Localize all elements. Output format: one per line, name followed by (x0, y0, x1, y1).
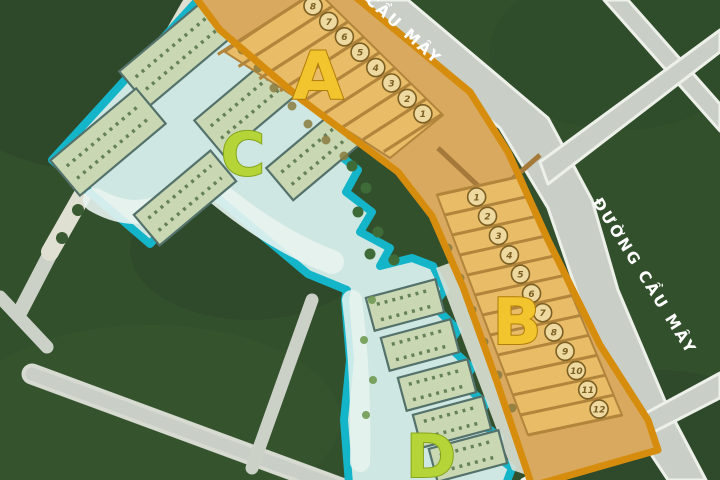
tree-dot (361, 183, 372, 194)
tree-dot (353, 207, 364, 218)
bush-dot (368, 296, 376, 304)
hedge-tree-dot (72, 204, 84, 216)
tree-dot (373, 227, 384, 238)
tree-dot (365, 249, 376, 260)
unit-number: 3 (495, 232, 501, 242)
tree-dot (389, 255, 400, 266)
unit-number: 4 (505, 251, 512, 261)
zone-c-label[interactable]: C (221, 120, 265, 190)
unit-number: 11 (581, 386, 594, 396)
margin-tree-dot (270, 84, 279, 93)
zone-d-label[interactable]: D (406, 422, 456, 480)
masterplan-map: 87654321 123456789101112 A B C D ĐƯỜNG C… (0, 0, 720, 480)
unit-number: 12 (593, 405, 606, 415)
margin-tree-dot (304, 120, 313, 129)
unit-number: 4 (372, 64, 379, 74)
unit-number: 1 (474, 193, 480, 203)
plaza-walk-d (352, 300, 360, 462)
masterplan-svg: 87654321 123456789101112 A B C D ĐƯỜNG C… (0, 0, 720, 480)
unit-number: 2 (404, 95, 410, 105)
unit-number: 10 (570, 367, 583, 377)
bush-dot (360, 336, 368, 344)
margin-tree-dot (340, 152, 349, 161)
unit-number: 5 (357, 49, 363, 59)
unit-number: 2 (484, 213, 490, 223)
unit-number: 8 (310, 2, 316, 12)
margin-tree-dot (322, 136, 331, 145)
unit-number: 8 (551, 328, 557, 338)
zone-a-label[interactable]: A (292, 38, 343, 115)
zone-b-label[interactable]: B (493, 286, 542, 360)
unit-number: 3 (388, 79, 394, 89)
bush-dot (362, 411, 370, 419)
tree-dot (347, 161, 358, 172)
bush-dot (369, 376, 377, 384)
unit-number: 9 (562, 348, 568, 358)
hedge-tree-dot (56, 232, 68, 244)
unit-number: 5 (517, 271, 523, 281)
unit-number: 1 (420, 110, 426, 120)
unit-number: 7 (326, 18, 333, 28)
